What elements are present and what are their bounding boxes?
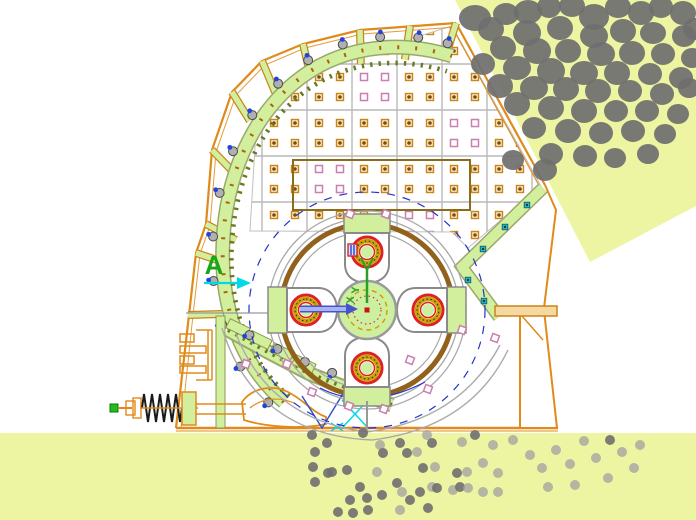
rock [604,100,628,122]
particle [397,487,407,497]
bolt-cap [378,30,383,35]
panel-bolt-dot [428,187,432,191]
panel-bolt-orange [316,48,323,55]
particle [415,487,425,497]
rock [604,148,626,168]
panel-bolt-dot [272,213,276,217]
particle [570,480,580,490]
pink-hole-marker [346,210,355,219]
panel-bolt-dot [272,167,276,171]
panel-bolt-dot [497,213,501,217]
bolt-cap [417,30,422,35]
hammer-pin [361,246,373,258]
particle [363,505,373,515]
particle [508,435,518,445]
bolt-cap [447,36,452,41]
bolt-cap [270,349,275,354]
particle [605,435,615,445]
particle [462,467,472,477]
rock [618,80,642,102]
panel-bolt-pink [451,140,458,147]
panel-bolt-dot [383,187,387,191]
particle [488,440,498,450]
particle [543,482,553,492]
panel-bolt-pink [292,28,299,35]
particle [463,483,473,493]
rock [619,41,645,65]
panel-bolt-pink [427,212,434,219]
panel-bolt-dot [317,213,321,217]
rib [232,92,250,121]
hammer-cap [268,287,287,333]
rock [651,43,675,65]
panel-bolt-pink [316,166,323,173]
hammer-pin [361,362,373,374]
panel-bolt-orange [316,28,323,35]
panel-bolt-dot [428,95,432,99]
bolt-cap [206,232,211,237]
bolt-cap [262,403,267,408]
rock [672,25,696,47]
panel-bolt-dot [452,187,456,191]
panel-bolt-dot [293,121,297,125]
panel-bolt-dot [407,141,411,145]
rock [587,42,615,66]
chute-bolt-dot [504,226,506,228]
panel-bolt-dot [293,141,297,145]
pink-hole-marker [491,334,500,343]
panel-bolt-pink [472,120,479,127]
rock [555,119,581,143]
panel-bolt-dot [317,29,321,33]
panel-bolt-dot [338,95,342,99]
panel-bolt-dot [272,141,276,145]
panel-bolt-pink [316,186,323,193]
rock [571,99,597,123]
bolt-cap [274,77,279,82]
rib [262,61,275,92]
panel-bolt-pink [361,94,368,101]
bolt-cap [227,145,232,150]
panel-bolt-dot [497,167,501,171]
rock [533,159,557,181]
hammer-assembly [397,287,466,333]
panel-bolt-dot [317,121,321,125]
particle [452,468,462,478]
crusher-cad-drawing: Y X A [0,0,696,520]
particle [457,437,467,447]
particle [310,447,320,457]
particle [362,493,372,503]
bolt-cap [242,334,247,339]
rock [637,144,659,164]
particle [405,495,415,505]
panel-bolt-dot [317,141,321,145]
bolt-cap [213,187,218,192]
panel-bolt-dot [317,95,321,99]
panel-bolt-dot [272,187,276,191]
hammer-key-detail [348,244,357,256]
pink-hole-marker [380,405,389,414]
panel-bolt-pink [382,74,389,81]
rock [538,96,564,120]
rock [522,117,546,139]
bolt-cap [305,53,310,58]
particle [470,430,480,440]
panel-bolt-orange [517,232,524,239]
rock [490,36,516,60]
panel-bolt-dot [473,95,477,99]
cad-canvas: Y X A [0,0,696,520]
chute-bolt-dot [467,279,469,281]
rock [640,22,666,44]
hammer-pin [422,304,434,316]
particle [430,462,440,472]
panel-bolt-dot [338,141,342,145]
particle [307,430,317,440]
particle [603,473,613,483]
rock [471,53,495,75]
rock [547,16,573,40]
rock [621,120,645,142]
particle [478,487,488,497]
chute-bolt-dot [483,300,485,302]
panel-bolt-dot [452,167,456,171]
panel-bolt-dot [473,213,477,217]
chute-bolt-dot [526,204,528,206]
particle [322,438,332,448]
panel-bolt-dot [428,141,432,145]
panel-bolt-dot [452,213,456,217]
particle [348,508,358,518]
panel-bolt-dot [362,141,366,145]
panel-bolt-pink [337,186,344,193]
panel-bolt-dot [428,167,432,171]
particle [427,438,437,448]
pink-hole-marker [308,388,317,397]
axis-x-label: X [345,296,357,304]
particle [402,448,412,458]
particle [432,483,442,493]
pink-hole-marker [345,402,354,411]
feed-chute [462,188,543,317]
panel-bolt-pink [271,28,278,35]
spring-rod-tip [110,404,118,412]
panel-bolt-dot [473,75,477,79]
rock [487,74,513,98]
panel-bolt-dot [497,141,501,145]
rock [502,150,524,170]
panel-bolt-dot [407,75,411,79]
bolt-cap [233,366,238,371]
rock [585,79,611,103]
particle [525,450,535,460]
panel-bolt-dot [338,121,342,125]
pink-hole-marker [382,210,391,219]
panel-bolt-dot [362,187,366,191]
rotor-center-point [365,308,370,313]
panel-bolt-orange [292,232,299,239]
panel-bolt-dot [407,167,411,171]
panel-bolt-dot [518,187,522,191]
panel-bolt-dot [452,95,456,99]
rock [635,100,659,122]
panel-bolt-dot [518,233,522,237]
panel-bolt-pink [472,140,479,147]
particle [395,438,405,448]
particle [635,440,645,450]
pink-hole-marker [424,385,433,394]
particle [333,507,343,517]
panel-bolt-dot [428,121,432,125]
axis-y-label: Y [350,286,362,294]
panel-bolt-dot [338,75,342,79]
particle [617,447,627,457]
panel-bolt-dot [383,141,387,145]
particle [308,462,318,472]
particle [537,463,547,473]
particle [493,487,503,497]
particle [378,448,388,458]
panel-bolt-dot [497,121,501,125]
rock [638,63,662,85]
particle [412,447,422,457]
panel-bolt-dot [407,187,411,191]
pink-hole-marker [458,326,467,335]
rock [504,92,530,116]
panel-bolt-dot [317,75,321,79]
rock [650,83,674,105]
panel-bolt-pink [337,166,344,173]
particle [579,436,589,446]
particle [591,453,601,463]
panel-bolt-dot [362,121,366,125]
panel-bolt-dot [452,75,456,79]
pink-hole-marker [283,360,292,369]
particle [493,468,503,478]
panel-bolt-pink [271,48,278,55]
panel-bolt-dot [383,167,387,171]
panel-bolt-dot [473,167,477,171]
panel-bolt-dot [473,233,477,237]
panel-bolt-dot [428,75,432,79]
panel-bolt-dot [407,95,411,99]
rock [667,104,689,124]
rock [589,122,613,144]
panel-bolt-dot [407,121,411,125]
particle [565,459,575,469]
rock [573,145,597,167]
chute-bolt-dot [482,248,484,250]
panel-bolt-dot [473,187,477,191]
particle [310,477,320,487]
panel-bolt-dot [293,233,297,237]
bolt-cap [340,37,345,42]
panel-bolt-dot [497,187,501,191]
rock [610,19,636,43]
particle [551,445,561,455]
hammer-assembly [344,337,390,406]
rock [555,39,581,63]
panel-bolt-dot [317,49,321,53]
panel-bolt-pink [361,74,368,81]
right-support [495,306,557,428]
pink-hole-marker [406,356,415,365]
panel-bolt-pink [382,94,389,101]
particle [358,428,368,438]
pink-hole-marker [242,360,251,369]
particle [355,482,365,492]
particle [345,495,355,505]
particle [423,503,433,513]
section-arrowhead [237,277,251,289]
panel-bolt-dot [473,49,477,53]
particle [372,467,382,477]
panel-bolt-dot [338,29,342,33]
rib [188,314,222,315]
panel-bolt-dot [362,167,366,171]
particle [478,458,488,468]
section-a-label: A [205,250,224,280]
particle [377,490,387,500]
panel-bolt-pink [451,120,458,127]
particle [395,505,405,515]
particle [629,463,639,473]
particle [323,468,333,478]
discharge-ground [0,433,696,520]
panel-bolt-dot [383,121,387,125]
particle [392,478,402,488]
panel-bolt-pink [406,212,413,219]
particle [342,465,352,475]
particle [418,463,428,473]
rock [654,124,676,144]
spring-plate [182,392,196,425]
bolt-cap [247,108,252,113]
